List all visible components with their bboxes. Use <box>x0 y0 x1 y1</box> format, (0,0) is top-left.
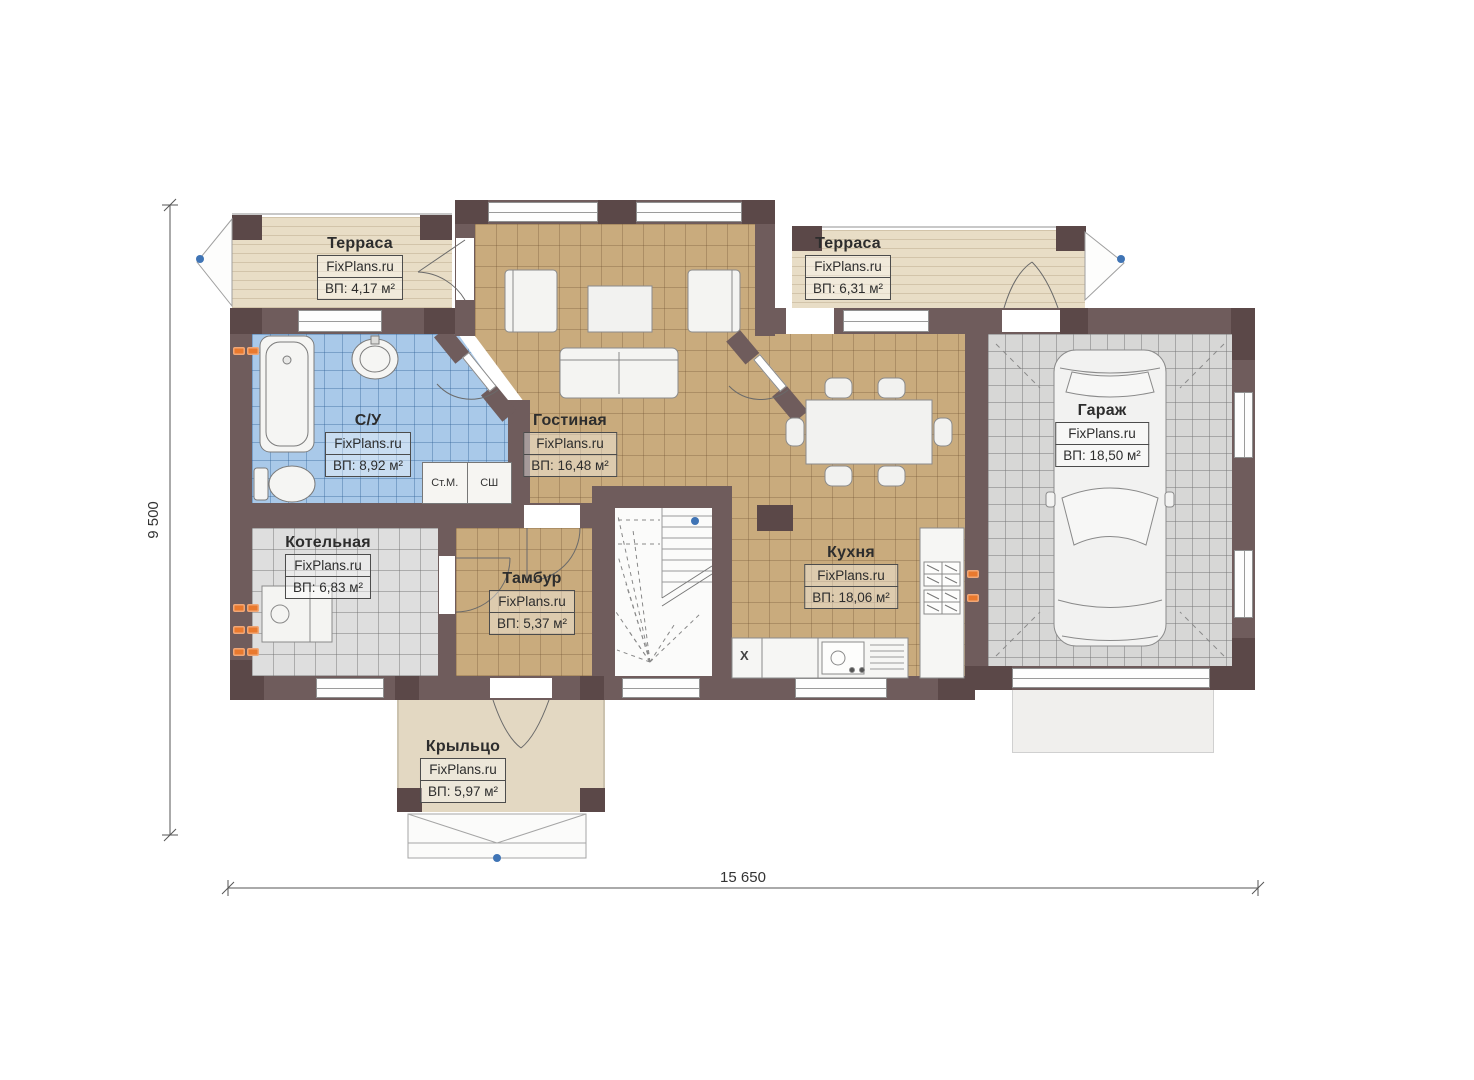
room-area: ВП: 5,37 м² <box>489 612 575 635</box>
wall-pier <box>230 308 262 334</box>
wall-pier <box>1210 666 1255 690</box>
garage-floor <box>988 334 1232 666</box>
room-area: ВП: 6,31 м² <box>805 277 891 300</box>
window <box>1234 392 1253 458</box>
floor-plan: Ст.М. СШ X <box>0 0 1474 1080</box>
radiator-icon <box>247 347 259 355</box>
radiator-icon <box>233 347 245 355</box>
washing-machine-label: Ст.М. <box>423 463 467 503</box>
radiator-icon <box>967 570 979 578</box>
wall-pier <box>397 788 422 812</box>
roof-gable-right <box>1085 232 1125 300</box>
room-name: Котельная <box>285 534 371 552</box>
window <box>298 310 382 332</box>
brand-label: FixPlans.ru <box>420 758 506 781</box>
window <box>843 310 929 332</box>
brand-label: FixPlans.ru <box>523 432 617 455</box>
radiator-icon <box>247 604 259 612</box>
brand-label: FixPlans.ru <box>804 564 898 587</box>
porch-steps-canopy <box>408 814 586 862</box>
radiator-icon <box>247 648 259 656</box>
room-area: ВП: 18,50 м² <box>1055 444 1149 467</box>
brand-label: FixPlans.ru <box>325 432 411 455</box>
wall-segment <box>712 505 732 676</box>
kitchen-unit-x-label: X <box>740 648 749 663</box>
wall-pier <box>230 676 264 700</box>
door-opening <box>439 556 455 614</box>
room-label-living: Гостиная FixPlans.ru ВП: 16,48 м² <box>523 412 617 477</box>
brand-label: FixPlans.ru <box>805 255 891 278</box>
terrace-left-roof-edge <box>232 213 452 215</box>
wall-pier <box>757 505 793 531</box>
wall-pier <box>232 215 262 240</box>
room-name: Крыльцо <box>420 738 506 756</box>
wall-segment <box>592 486 732 508</box>
room-name: Тамбур <box>489 570 575 588</box>
radiator-icon <box>967 594 979 602</box>
window <box>1234 550 1253 618</box>
radiator-icon <box>233 648 245 656</box>
room-name: Терраса <box>805 235 891 253</box>
dimension-line-horizontal <box>222 880 1264 896</box>
dimension-width-label: 15 650 <box>720 869 766 886</box>
wall-pier <box>965 666 1012 690</box>
room-area: ВП: 18,06 м² <box>804 586 898 609</box>
room-label-kitchen: Кухня FixPlans.ru ВП: 18,06 м² <box>804 544 898 609</box>
dimension-height-label: 9 500 <box>145 501 162 539</box>
wall-pier <box>1232 308 1255 360</box>
door-opening <box>1002 310 1060 332</box>
wall-pier <box>580 788 605 812</box>
room-label-terrace-left: Терраса FixPlans.ru ВП: 4,17 м² <box>317 235 403 300</box>
window <box>636 202 742 222</box>
radiator-icon <box>953 570 965 578</box>
wall-segment <box>755 224 775 336</box>
brand-label: FixPlans.ru <box>285 554 371 577</box>
room-area: ВП: 16,48 м² <box>523 454 617 477</box>
room-name: Гараж <box>1055 402 1149 420</box>
room-label-bathroom: С/У FixPlans.ru ВП: 8,92 м² <box>325 412 411 477</box>
room-area: ВП: 6,83 м² <box>285 576 371 599</box>
wall-pier <box>598 200 636 224</box>
room-label-tambour: Тамбур FixPlans.ru ВП: 5,37 м² <box>489 570 575 635</box>
room-area: ВП: 8,92 м² <box>325 454 411 477</box>
dimension-line-vertical <box>162 199 178 841</box>
room-area: ВП: 4,17 м² <box>317 277 403 300</box>
room-name: С/У <box>325 412 411 430</box>
wall-pier <box>742 200 775 224</box>
radiator-icon <box>233 604 245 612</box>
room-name: Кухня <box>804 544 898 562</box>
wall-pier <box>1056 226 1086 251</box>
room-label-terrace-right: Терраса FixPlans.ru ВП: 6,31 м² <box>805 235 891 300</box>
room-name: Терраса <box>317 235 403 253</box>
window <box>795 678 887 698</box>
radiator-icon <box>233 626 245 634</box>
brand-label: FixPlans.ru <box>1055 422 1149 445</box>
terrace-right-roof-edge <box>792 226 1085 228</box>
radiator-icon <box>247 626 259 634</box>
entrance-door-opening <box>490 678 552 698</box>
garage-apron <box>1012 690 1214 753</box>
wall-segment <box>1232 308 1255 690</box>
garage-door <box>1012 668 1210 688</box>
wall-segment <box>965 308 988 690</box>
wall-pier <box>395 676 419 700</box>
room-area: ВП: 5,97 м² <box>420 780 506 803</box>
wall-pier <box>455 200 488 224</box>
room-label-porch: Крыльцо FixPlans.ru ВП: 5,97 м² <box>420 738 506 803</box>
laundry-closet: Ст.М. СШ <box>422 462 512 504</box>
wall-segment <box>592 508 615 676</box>
window <box>488 202 598 222</box>
room-label-garage: Гараж FixPlans.ru ВП: 18,50 м² <box>1055 402 1149 467</box>
door-opening <box>524 505 580 528</box>
window <box>622 678 700 698</box>
wall-segment <box>230 308 252 700</box>
room-label-boiler: Котельная FixPlans.ru ВП: 6,83 м² <box>285 534 371 599</box>
room-name: Гостиная <box>523 412 617 430</box>
window <box>316 678 384 698</box>
brand-label: FixPlans.ru <box>489 590 575 613</box>
wall-pier <box>424 308 455 334</box>
wall-pier <box>420 215 452 240</box>
wall-pier <box>1060 308 1088 334</box>
radiator-icon <box>953 594 965 602</box>
door-opening <box>786 308 834 334</box>
roof-gable-left <box>196 219 232 306</box>
brand-label: FixPlans.ru <box>317 255 403 278</box>
drying-cabinet-label: СШ <box>467 463 512 503</box>
wall-pier <box>580 676 604 700</box>
door-opening <box>456 238 474 300</box>
stairs-floor <box>615 508 712 676</box>
